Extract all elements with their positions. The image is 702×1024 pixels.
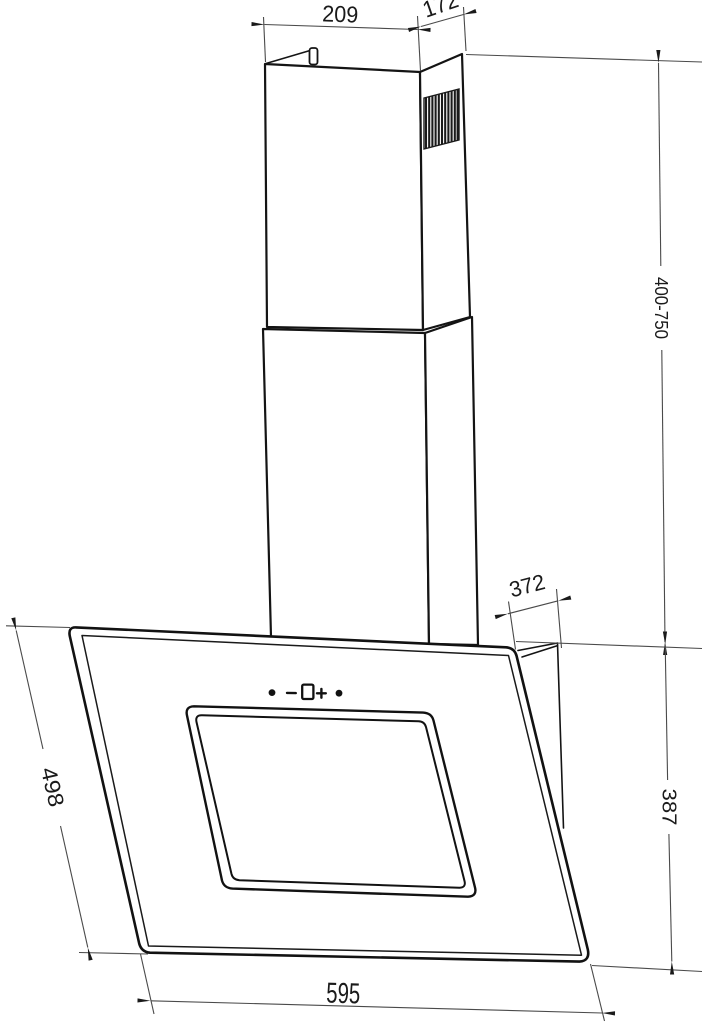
vent-grille-icon <box>424 89 459 149</box>
dim-body-width-label: 595 <box>326 978 361 1011</box>
hood-body <box>69 627 588 961</box>
mounting-bracket-icon <box>266 48 318 65</box>
chimney-lower-front-panel <box>263 329 429 644</box>
display-square-icon <box>302 685 313 699</box>
dim-body-height-label: 387 <box>658 789 680 826</box>
dimension-top-depth: 372 <box>507 569 562 649</box>
dimension-chimney-height-range: 400-750 <box>466 55 702 643</box>
dim-chimney-height-range-label: 400-750 <box>651 277 672 339</box>
control-dot-right-icon <box>336 690 343 697</box>
cooker-hood-dimension-drawing: 209 172 400-750 372 498 <box>0 0 702 1024</box>
dim-glass-length-label: 498 <box>36 765 69 810</box>
dim-top-depth-label: 372 <box>507 569 548 602</box>
technical-drawing-canvas: 209 172 400-750 372 498 <box>0 0 702 1024</box>
dimension-body-width: 595 <box>141 954 605 1021</box>
dimension-chimney-width: 209 <box>264 0 421 71</box>
chimney-upper-front-panel <box>265 64 423 330</box>
dim-chimney-depth-label: 172 <box>419 0 462 23</box>
dimension-chimney-depth: 172 <box>419 0 466 51</box>
chimney-lower-side-panel <box>425 317 478 645</box>
dim-chimney-width-label: 209 <box>322 0 359 27</box>
control-dot-left-icon <box>269 689 276 696</box>
chimney-duct <box>263 48 478 645</box>
